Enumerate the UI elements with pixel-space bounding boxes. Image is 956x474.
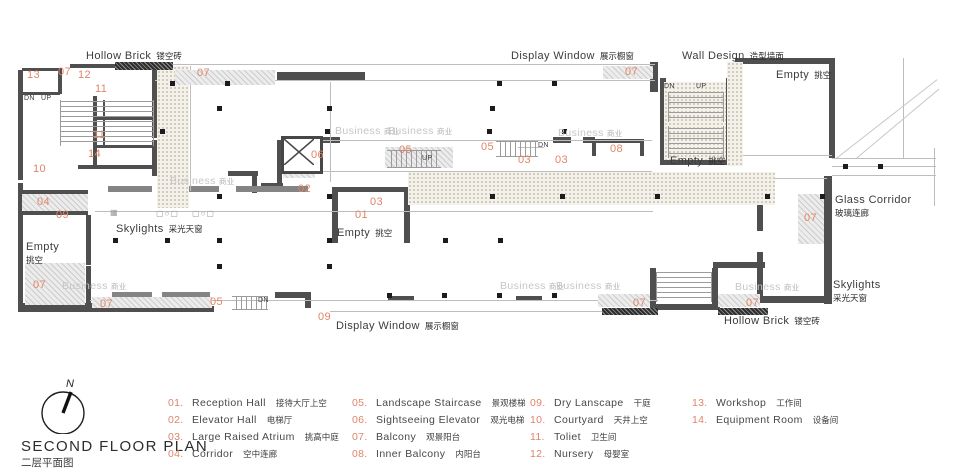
business-label: Business商业 [558, 127, 623, 139]
stair-treads [387, 150, 441, 168]
column-dot [490, 106, 495, 111]
legend-column: 13.Workshop工作间14.Equipment Room设备间 [692, 397, 838, 431]
room-number-label: 05 [399, 144, 412, 156]
area-label-en: Display Window [336, 320, 420, 332]
column-dot [843, 164, 848, 169]
area-label-zh: 造型墙面 [750, 51, 784, 61]
legend-item-name-zh: 景观楼梯 [492, 397, 526, 409]
legend-item-number: 09. [530, 397, 554, 409]
roof-diagonal-line [856, 89, 939, 159]
room-number-label: 03 [518, 154, 531, 166]
stair-direction-label: DN [258, 297, 269, 304]
legend-item-name-zh: 空中连廊 [243, 448, 277, 460]
legend-item: 04.Corridor空中连廊 [168, 448, 339, 465]
area-label-en: Empty [26, 241, 59, 253]
business-label-en: Business [500, 280, 546, 292]
room-number-label: 08 [610, 143, 623, 155]
stipple-area [408, 172, 775, 205]
legend-column: 01.Reception Hall接待大厅上空02.Elevator Hall电… [168, 397, 339, 465]
grid-line [934, 148, 935, 206]
legend-item-number: 12. [530, 448, 554, 460]
area-label-en: Empty [670, 155, 703, 167]
area-label: Hollow Brick镂空砖 [724, 316, 820, 327]
column-dot [498, 238, 503, 243]
room-number-label: 11 [95, 83, 107, 95]
business-label: Business商业 [388, 125, 453, 137]
column-dot [170, 81, 175, 86]
room-number-label: 10 [33, 163, 46, 175]
area-label: Empty挑空 [670, 156, 725, 167]
business-label: Business商业 [500, 280, 565, 292]
wall-segment [277, 72, 365, 80]
stair-treads [668, 92, 724, 122]
stair-treads [496, 141, 538, 157]
legend-item-number: 04. [168, 448, 192, 460]
stair-direction-label: UP [696, 83, 706, 90]
area-label-zh: 镂空砖 [156, 51, 182, 61]
area-label-zh: 玻璃连廊 [835, 208, 912, 219]
business-label-zh: 商业 [605, 282, 621, 291]
room-number-label: 05 [210, 296, 223, 308]
wall-segment [592, 139, 596, 156]
legend-item-name-zh: 工作间 [776, 397, 802, 409]
area-label: Wall Design造型墙面 [682, 51, 784, 62]
room-number-label: 07 [804, 212, 817, 224]
business-label-en: Business [556, 280, 602, 292]
legend-item-name-en: Workshop [716, 397, 766, 409]
column-dot [217, 106, 222, 111]
roof-diagonal-line [836, 79, 937, 159]
legend-item-number: 13. [692, 397, 716, 409]
legend-item-number: 08. [352, 448, 376, 460]
wall-segment [332, 187, 410, 192]
wall-segment [78, 165, 156, 169]
area-label-en: Hollow Brick [724, 315, 789, 327]
wall-segment [18, 70, 23, 180]
area-label-en: Skylights [116, 223, 164, 235]
business-label-zh: 商业 [111, 282, 127, 291]
floor-plan-sheet: ▦▢○▢▢○▢130712111114100409070705090707060… [0, 0, 956, 474]
business-label-en: Business [170, 175, 216, 187]
grid-line [832, 158, 936, 159]
room-number-label: 03 [555, 154, 568, 166]
stair-direction-label: DN [538, 142, 549, 149]
north-compass-icon [38, 384, 88, 434]
column-dot [878, 164, 883, 169]
column-dot [160, 129, 165, 134]
furniture-symbol: ▢○▢ [192, 209, 215, 218]
legend-item-name-en: Landscape Staircase [376, 397, 482, 409]
legend-item-name-en: Dry Lanscape [554, 397, 624, 409]
legend-item-number: 02. [168, 414, 192, 426]
area-label-en: Display Window [511, 50, 595, 62]
area-label: Skylights采光天窗 [116, 224, 203, 235]
column-dot [325, 129, 330, 134]
room-number-label: 04 [37, 196, 50, 208]
legend-column: 05.Landscape Staircase景观楼梯06.Sightseeing… [352, 397, 526, 465]
business-label-en: Business [558, 127, 604, 139]
column-dot [327, 264, 332, 269]
legend-item: 08.Inner Balcony内阳台 [352, 448, 526, 465]
legend-item-name-zh: 内阳台 [455, 448, 481, 460]
room-number-label: 03 [370, 196, 383, 208]
area-label-en: Hollow Brick [86, 50, 151, 62]
area-label-en: Wall Design [682, 50, 745, 62]
furniture-symbol: ▢○▢ [156, 209, 179, 218]
column-dot [225, 81, 230, 86]
legend-item: 03.Large Raised Atrium挑高中庭 [168, 431, 339, 448]
business-label: Business商业 [170, 175, 235, 187]
area-label: Hollow Brick镂空砖 [86, 51, 182, 62]
legend-item: 14.Equipment Room设备间 [692, 414, 838, 431]
hollow-brick-wall [718, 308, 768, 315]
business-label-en: Business [735, 281, 781, 293]
room-number-label: 07 [625, 66, 638, 78]
hollow-brick-wall [115, 62, 173, 70]
legend-item-name-en: Corridor [192, 448, 233, 460]
column-dot [552, 293, 557, 298]
legend-item-name-zh: 挑高中庭 [305, 431, 339, 443]
column-dot [497, 81, 502, 86]
legend-item-name-zh: 设备间 [813, 414, 839, 426]
business-label-en: Business [335, 125, 381, 137]
room-number-label: 06 [311, 149, 324, 161]
room-number-label: 07 [197, 67, 210, 79]
room-number-label: 07 [746, 297, 759, 309]
room-number-label: 14 [88, 148, 101, 160]
wall-segment [275, 292, 309, 298]
room-number-label: 01 [355, 209, 368, 221]
area-label: Display Window展示橱窗 [511, 51, 634, 62]
area-label: Skylights采光天窗 [833, 280, 881, 304]
legend-item-number: 11. [530, 431, 554, 443]
area-label-zh: 展示橱窗 [425, 321, 459, 331]
business-label: Business商业 [556, 280, 621, 292]
area-label-zh: 采光天窗 [169, 224, 203, 234]
business-label: Business商业 [735, 281, 800, 293]
area-label: Empty挑空 [26, 242, 59, 266]
business-label: Business商业 [62, 280, 127, 292]
column-dot [655, 194, 660, 199]
legend-item-name-en: Nursery [554, 448, 594, 460]
legend-item-name-en: Toliet [554, 431, 581, 443]
grid-line [330, 82, 331, 182]
room-number-label: 09 [318, 311, 331, 323]
business-label-en: Business [62, 280, 108, 292]
legend-item-number: 05. [352, 397, 376, 409]
column-dot [217, 264, 222, 269]
room-number-label: 13 [27, 69, 40, 81]
legend-item-name-en: Elevator Hall [192, 414, 257, 426]
column-dot [442, 293, 447, 298]
stair-direction-label: DN [24, 95, 35, 102]
legend-item: 11.Toliet卫生间 [530, 431, 651, 448]
legend-item-name-en: Large Raised Atrium [192, 431, 295, 443]
area-label-en: Empty [776, 69, 809, 81]
stair-direction-label: DN [664, 83, 675, 90]
legend-item-name-en: Equipment Room [716, 414, 803, 426]
room-number-label: 09 [56, 209, 69, 221]
area-label-zh: 镂空砖 [794, 316, 820, 326]
legend-item-name-en: Sightseeing Elevator [376, 414, 480, 426]
legend-item: 01.Reception Hall接待大厅上空 [168, 397, 339, 414]
legend-item: 13.Workshop工作间 [692, 397, 838, 414]
legend-item-number: 06. [352, 414, 376, 426]
room-number-label: 07 [33, 279, 46, 291]
column-dot [490, 194, 495, 199]
legend-item: 06.Sightseeing Elevator观光电梯 [352, 414, 526, 431]
wall-segment [640, 139, 644, 156]
wall-segment [824, 176, 832, 304]
stair-direction-label: UP [41, 95, 51, 102]
column-dot [820, 194, 825, 199]
legend-item-name-zh: 卫生间 [591, 431, 617, 443]
business-label-en: Business [388, 125, 434, 137]
legend-item-name-zh: 观景阳台 [426, 431, 460, 443]
plan-subtitle: 二层平面图 [21, 455, 74, 470]
column-dot [387, 293, 392, 298]
room-number-label: 07 [58, 66, 71, 78]
legend-item: 05.Landscape Staircase景观楼梯 [352, 397, 526, 414]
legend-item-name-en: Inner Balcony [376, 448, 445, 460]
area-label-zh: 挑空 [708, 156, 725, 166]
legend-item: 12.Nursery母婴室 [530, 448, 651, 465]
stair-treads [656, 272, 712, 302]
business-label-zh: 商业 [219, 177, 235, 186]
legend-item: 09.Dry Lanscape干庭 [530, 397, 651, 414]
hatch-area [22, 194, 88, 211]
area-label-zh: 展示橱窗 [600, 51, 634, 61]
grid-line [330, 311, 640, 312]
legend-item-name-en: Balcony [376, 431, 416, 443]
area-label: Empty挑空 [776, 70, 831, 81]
legend-item-number: 03. [168, 431, 192, 443]
legend-item-number: 10. [530, 414, 554, 426]
wall-segment [650, 304, 720, 310]
legend-item-name-zh: 电梯厅 [267, 414, 293, 426]
window-wall-segment [108, 186, 152, 192]
stair-treads [668, 126, 724, 158]
legend-item: 02.Elevator Hall电梯厅 [168, 414, 339, 431]
business-label-zh: 商业 [784, 283, 800, 292]
wall-segment [86, 215, 91, 265]
column-dot [327, 194, 332, 199]
area-label: Display Window展示橱窗 [336, 321, 459, 332]
wall-segment [760, 296, 832, 303]
grid-line [832, 175, 936, 176]
column-dot [165, 238, 170, 243]
room-number-label: 07 [100, 298, 113, 310]
room-number-label: 12 [78, 69, 91, 81]
area-label: Empty挑空 [337, 228, 392, 239]
column-dot [765, 194, 770, 199]
column-dot [552, 81, 557, 86]
room-number-label: 07 [633, 297, 646, 309]
column-dot [560, 194, 565, 199]
stipple-area [727, 62, 743, 166]
grid-line [158, 64, 655, 65]
column-dot [217, 194, 222, 199]
business-label-zh: 商业 [437, 127, 453, 136]
room-number-label: 02 [298, 183, 311, 195]
room-number-label: 05 [481, 141, 494, 153]
column-dot [497, 293, 502, 298]
area-label-zh: 挑空 [26, 255, 59, 266]
legend-item-number: 14. [692, 414, 716, 426]
area-label-en: Skylights [833, 279, 881, 291]
column-dot [327, 238, 332, 243]
column-dot [327, 106, 332, 111]
area-label-en: Empty [337, 227, 370, 239]
legend-item-name-en: Courtyard [554, 414, 604, 426]
room-number-label: 11 [93, 129, 105, 141]
area-label-zh: 挑空 [814, 70, 831, 80]
column-dot [113, 238, 118, 243]
floor-plan-drawing: ▦▢○▢▢○▢130712111114100409070705090707060… [0, 0, 956, 360]
wall-segment [22, 211, 88, 215]
legend-item-name-en: Reception Hall [192, 397, 266, 409]
legend-item-number: 01. [168, 397, 192, 409]
stair-direction-label: UP [422, 155, 432, 162]
area-label: Glass Corridor玻璃连廊 [835, 195, 912, 219]
wall-segment [713, 262, 765, 268]
legend-item-number: 07. [352, 431, 376, 443]
area-label-zh: 采光天窗 [833, 293, 881, 304]
column-dot [217, 238, 222, 243]
legend-column: 09.Dry Lanscape干庭10.Courtyard天井上空11.Toli… [530, 397, 651, 465]
grid-line [737, 155, 832, 156]
legend-item: 10.Courtyard天井上空 [530, 414, 651, 431]
area-label-zh: 挑空 [375, 228, 392, 238]
legend-item-name-zh: 观光电梯 [490, 414, 524, 426]
legend-item-name-zh: 天井上空 [614, 414, 648, 426]
area-label-en: Glass Corridor [835, 194, 912, 206]
stair-treads [60, 100, 154, 146]
legend-item: 07.Balcony观景阳台 [352, 431, 526, 448]
column-dot [443, 238, 448, 243]
business-label-zh: 商业 [607, 129, 623, 138]
column-dot [487, 129, 492, 134]
legend-item-name-zh: 干庭 [634, 397, 651, 409]
legend-item-name-zh: 接待大厅上空 [276, 397, 327, 409]
legend-item-name-zh: 母婴室 [604, 448, 630, 460]
grid-line [903, 58, 904, 158]
hollow-brick-wall [602, 308, 658, 315]
furniture-symbol: ▦ [110, 208, 119, 217]
